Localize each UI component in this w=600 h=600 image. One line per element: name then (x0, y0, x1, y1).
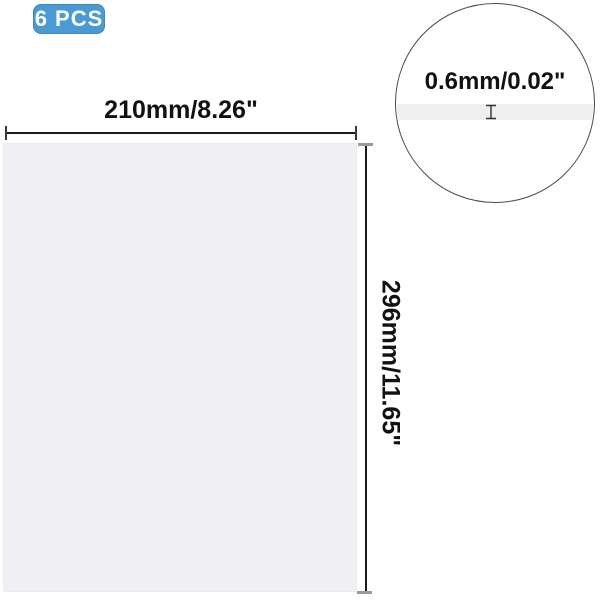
quantity-badge: 6 PCS (33, 4, 105, 34)
thickness-dimension-label: 0.6mm/0.02" (396, 68, 594, 96)
height-dimension-label: 296mm/11.65" (376, 280, 405, 446)
sheet-product-image (3, 143, 357, 592)
height-dimension-line (365, 146, 367, 592)
height-dimension-tick-bottom (357, 591, 372, 594)
thickness-i-beam-icon (484, 104, 498, 125)
width-dimension-line (6, 132, 357, 134)
width-dimension-tick-right (355, 126, 357, 140)
product-dimension-diagram: 6 PCS 210mm/8.26" 296mm/11.65" 0.6mm/0.0… (0, 0, 600, 600)
thickness-detail-circle: 0.6mm/0.02" (395, 3, 595, 203)
width-dimension-label: 210mm/8.26" (0, 96, 362, 125)
width-dimension-tick-left (5, 126, 7, 140)
